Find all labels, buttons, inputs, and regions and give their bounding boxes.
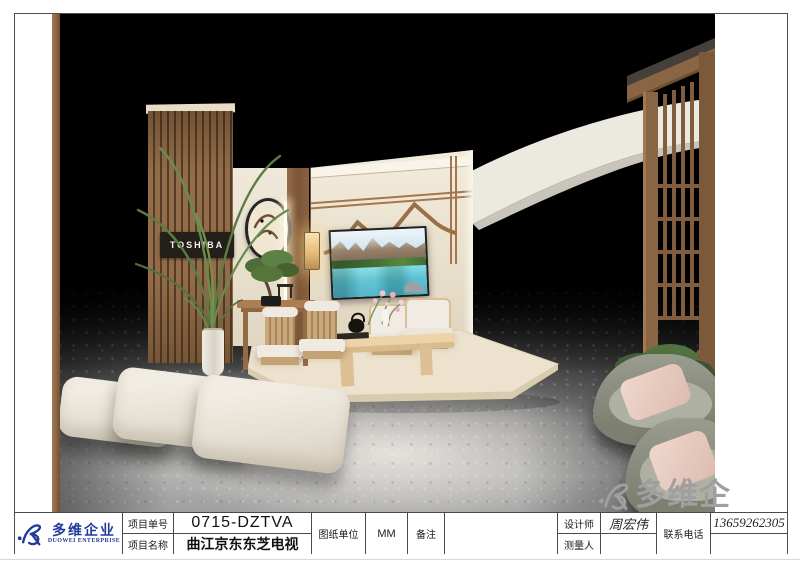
drawing-unit-label: 图纸单位 [311, 513, 365, 554]
booth-rendering: TOSHIBA [15, 14, 715, 512]
design-sheet: TOSHIBA [0, 0, 800, 566]
bonsai [237, 248, 307, 310]
remarks-label: 备注 [407, 513, 444, 554]
watermark: 多维企 [598, 477, 789, 513]
logo-name-cn: 多维企业 [52, 523, 116, 538]
project-no-label: 项目单号 [122, 513, 173, 533]
surveyor-value [600, 533, 656, 554]
teapot [348, 318, 365, 333]
watermark-logo-icon [598, 478, 632, 512]
flower-vase [381, 309, 389, 326]
left-wall-edge [15, 14, 52, 512]
company-logo-icon [17, 520, 44, 547]
watermark-text: 多维企 [635, 477, 731, 513]
floor-chair [299, 306, 345, 368]
logo-name-en: DUOWEI ENTERPRISE [48, 538, 120, 544]
project-no-value: 0715-DZTVA [173, 513, 311, 533]
company-logo: 多维企业 DUOWEI ENTERPRISE [15, 513, 122, 554]
project-name-label: 项目名称 [122, 533, 173, 554]
designer-label: 设计师 [557, 513, 600, 533]
project-name-value: 曲江京东东芝电视 [173, 533, 311, 554]
phone-empty-cell [710, 533, 787, 554]
designer-value: 周宏伟 [600, 513, 656, 533]
title-block: 多维企业 DUOWEI ENTERPRISE 项目单号 0715-DZTVA 项… [15, 512, 787, 554]
phone-label: 联系电话 [656, 513, 710, 554]
lamp-cord [310, 168, 311, 234]
phone-value: 13659262305 [710, 513, 787, 533]
plant-vase [202, 328, 224, 376]
floor-chair [257, 312, 303, 374]
page-edge-line [0, 559, 800, 560]
left-wood-post [52, 14, 60, 512]
remarks-value [444, 513, 557, 554]
tea-table-leg [419, 345, 433, 376]
drawing-unit-value: MM [365, 513, 407, 554]
surveyor-label: 测量人 [557, 533, 600, 554]
